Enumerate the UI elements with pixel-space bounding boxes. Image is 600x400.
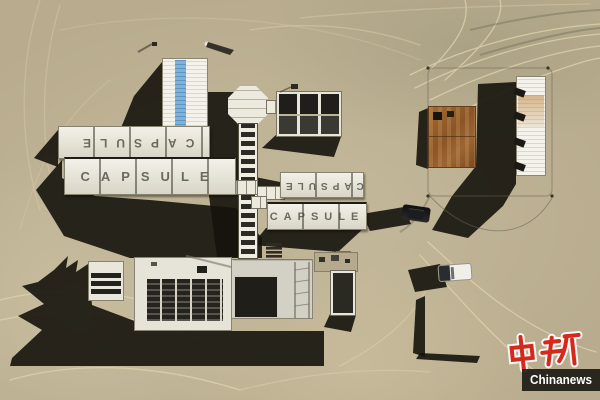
zhongxin-logo: 中新: [502, 328, 598, 372]
chinanews-wordmark: Chinanews: [530, 373, 592, 387]
fence-posts: [426, 66, 553, 197]
aerial-photo: CAPSULE CAPSULE CAPSULE CAPSULE: [0, 0, 600, 400]
zhongxin-logo-glyphs: [502, 328, 598, 372]
chinanews-bar: Chinanews: [522, 369, 600, 391]
stairs: [266, 243, 282, 258]
wing-railings: [233, 260, 312, 318]
flag-poles: [138, 42, 298, 93]
